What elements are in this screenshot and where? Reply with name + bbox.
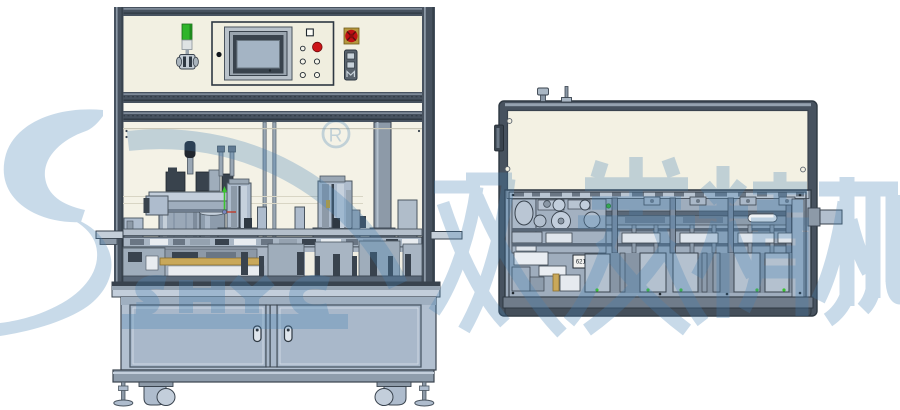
svg-text:R: R	[329, 126, 343, 147]
